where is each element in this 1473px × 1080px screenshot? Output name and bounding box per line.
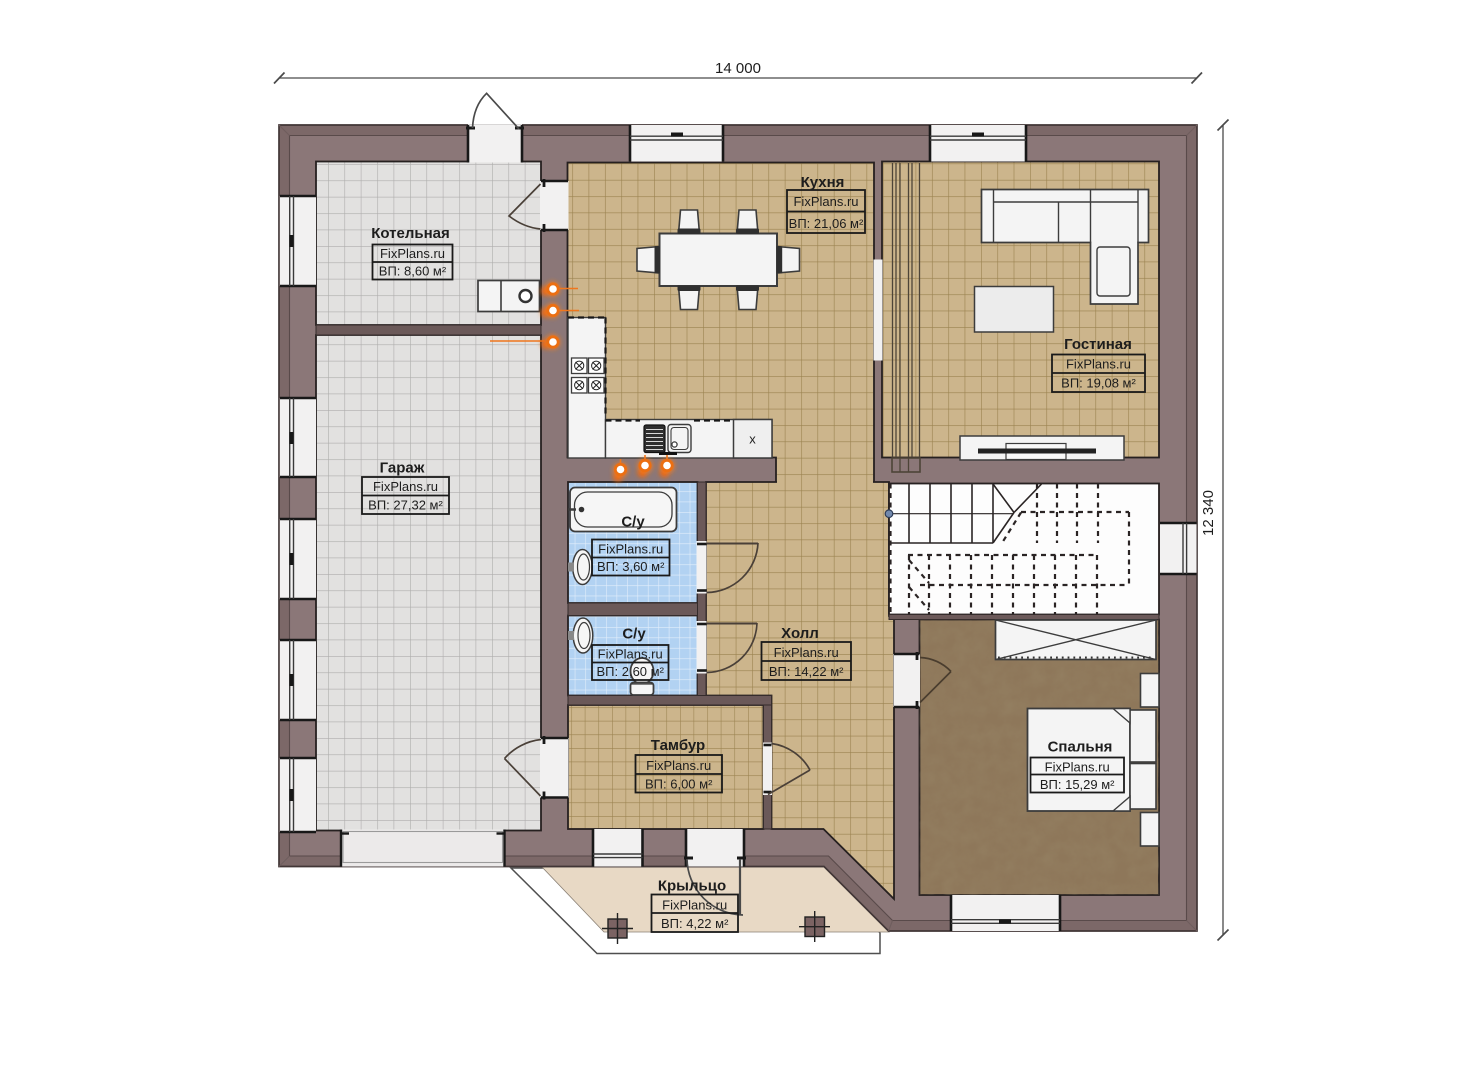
svg-text:Спальня: Спальня (1048, 739, 1113, 756)
svg-text:ВП: 19,08 м²: ВП: 19,08 м² (1061, 376, 1136, 391)
svg-text:x: x (749, 432, 756, 447)
svg-text:ВП: 6,00 м²: ВП: 6,00 м² (645, 777, 713, 792)
svg-text:ВП: 8,60 м²: ВП: 8,60 м² (379, 264, 447, 279)
svg-text:ВП: 15,29 м²: ВП: 15,29 м² (1040, 777, 1115, 792)
svg-text:С/у: С/у (621, 514, 645, 531)
svg-text:ВП: 27,32 м²: ВП: 27,32 м² (368, 498, 443, 513)
svg-text:ВП: 3,60 м²: ВП: 3,60 м² (597, 559, 665, 574)
svg-text:FixPlans.ru: FixPlans.ru (1045, 760, 1110, 775)
svg-text:FixPlans.ru: FixPlans.ru (598, 647, 663, 662)
svg-text:FixPlans.ru: FixPlans.ru (598, 542, 663, 557)
svg-text:ВП: 2,60 м²: ВП: 2,60 м² (596, 664, 664, 679)
svg-text:12 340: 12 340 (1200, 490, 1217, 536)
svg-text:14 000: 14 000 (715, 60, 761, 77)
svg-text:Крыльцо: Крыльцо (658, 878, 726, 895)
svg-text:С/у: С/у (622, 626, 646, 643)
svg-text:Гараж: Гараж (380, 460, 425, 477)
svg-text:ВП: 4,22 м²: ВП: 4,22 м² (661, 916, 729, 931)
svg-text:Гостиная: Гостиная (1064, 336, 1132, 353)
svg-text:FixPlans.ru: FixPlans.ru (373, 479, 438, 494)
svg-text:FixPlans.ru: FixPlans.ru (646, 758, 711, 773)
svg-text:FixPlans.ru: FixPlans.ru (662, 898, 727, 913)
svg-text:FixPlans.ru: FixPlans.ru (1066, 357, 1131, 372)
svg-text:FixPlans.ru: FixPlans.ru (793, 194, 858, 209)
svg-text:FixPlans.ru: FixPlans.ru (774, 645, 839, 660)
svg-text:FixPlans.ru: FixPlans.ru (380, 246, 445, 261)
svg-text:Кухня: Кухня (801, 174, 845, 191)
svg-text:Тамбур: Тамбур (651, 737, 705, 754)
svg-text:Котельная: Котельная (371, 225, 450, 242)
svg-text:ВП: 21,06 м²: ВП: 21,06 м² (789, 216, 864, 231)
svg-text:ВП: 14,22 м²: ВП: 14,22 м² (769, 664, 844, 679)
svg-text:Холл: Холл (781, 625, 819, 642)
